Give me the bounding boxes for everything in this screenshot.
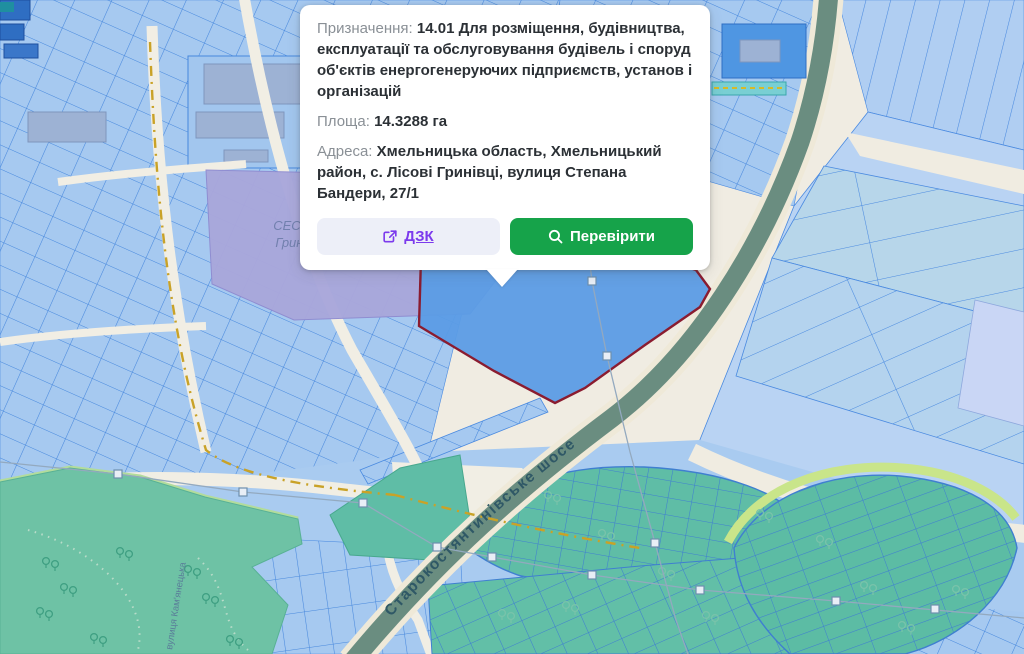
area-row: Площа: 14.3288 га [317, 111, 693, 132]
area-value: 14.3288 га [374, 113, 447, 130]
address-row: Адреса: Хмельницька область, Хмельницьки… [317, 141, 693, 204]
popup-buttons: ДЗК Перевірити [317, 218, 693, 255]
address-label: Адреса: [317, 143, 372, 160]
purpose-label: Призначення: [317, 20, 413, 37]
search-icon [548, 229, 563, 244]
map-viewport[interactable]: СЕС «Лісові Гринівці» Старокостянтинівсь… [0, 0, 1024, 654]
verify-button[interactable]: Перевірити [510, 218, 693, 255]
area-label: Площа: [317, 113, 370, 130]
external-link-icon [383, 230, 397, 244]
verify-button-label: Перевірити [570, 228, 655, 245]
parcel-info-popup: Призначення: 14.01 Для розміщення, будів… [300, 5, 710, 270]
dzk-button[interactable]: ДЗК [317, 218, 500, 255]
dzk-button-label: ДЗК [404, 228, 433, 245]
purpose-row: Призначення: 14.01 Для розміщення, будів… [317, 18, 693, 102]
